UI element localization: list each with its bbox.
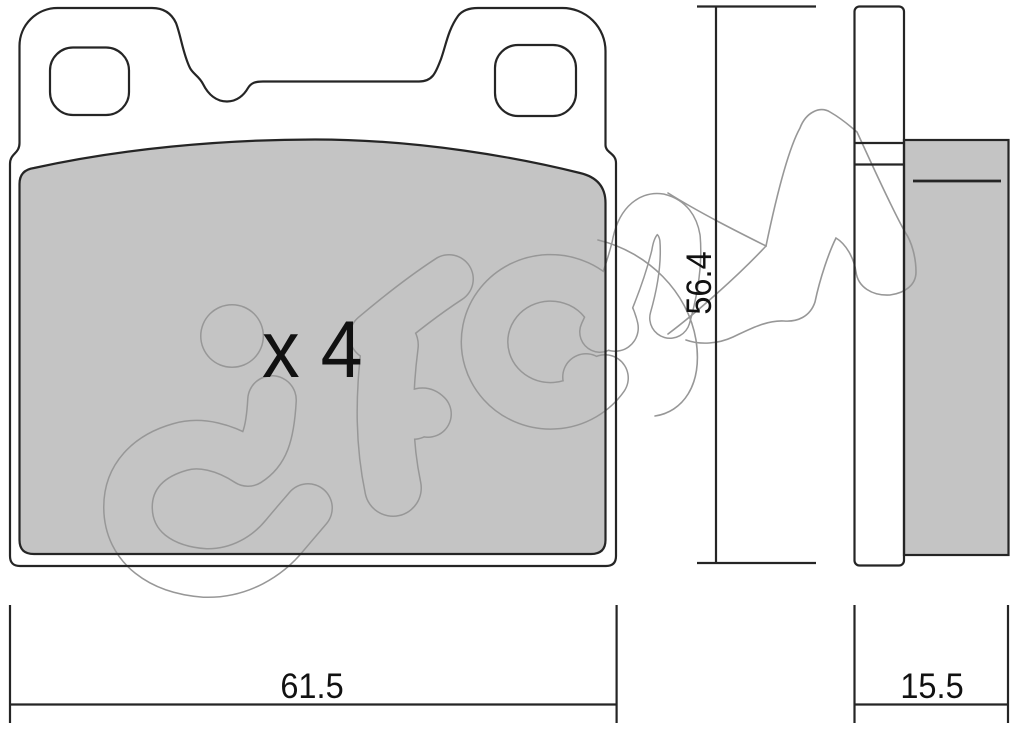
svg-text:56.4: 56.4 bbox=[680, 251, 719, 314]
svg-text:15.5: 15.5 bbox=[900, 667, 963, 706]
svg-text:61.5: 61.5 bbox=[280, 667, 343, 706]
svg-text:x 4: x 4 bbox=[262, 303, 362, 394]
